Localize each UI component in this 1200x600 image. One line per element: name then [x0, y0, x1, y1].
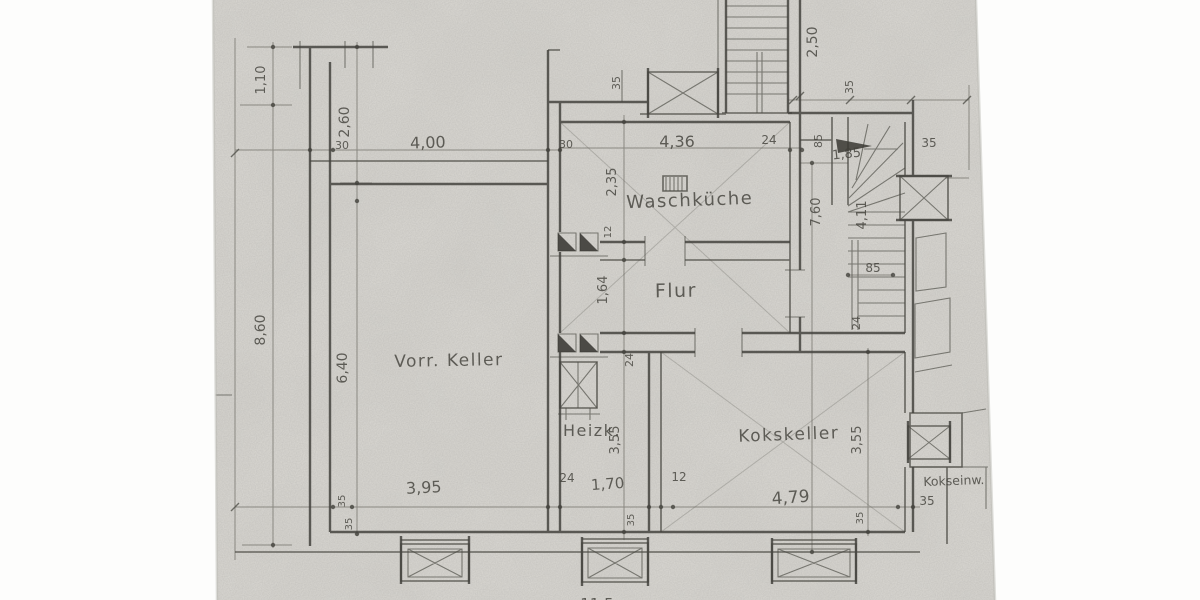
- dim-label: 3,95: [405, 477, 442, 498]
- dim-label: 24: [623, 353, 636, 367]
- dim-label: 2,50: [805, 26, 821, 57]
- dim-label: 1,10: [254, 66, 269, 95]
- dim-label: 35: [855, 512, 866, 525]
- dim-label: 1,70: [590, 474, 625, 494]
- dim-label: 85: [812, 134, 825, 148]
- scanned-floor-plan: Waschküche Flur Vorr. Keller Heizk. Koks…: [0, 0, 1200, 600]
- dim-label: 12: [671, 470, 686, 484]
- floor-plan-canvas: Waschküche Flur Vorr. Keller Heizk. Koks…: [0, 0, 1200, 600]
- dim-label: 35: [337, 495, 348, 508]
- dim-label: 3,55: [608, 426, 623, 455]
- dim-label: 2,60: [337, 106, 353, 137]
- room-label-waschkueche: Waschküche: [626, 188, 754, 213]
- scan-margin-right: [976, 0, 1200, 600]
- scan-margin-left: [0, 0, 217, 600]
- dim-label: 3,55: [850, 426, 865, 455]
- dim-label: 35: [843, 80, 856, 94]
- room-label-vorr-keller: Vorr. Keller: [394, 350, 504, 372]
- dim-label: 12: [603, 226, 614, 239]
- dim-label: 30: [559, 138, 573, 151]
- dim-label: 24: [761, 133, 776, 147]
- dim-label: 4,36: [659, 132, 695, 151]
- dim-label: 35: [610, 76, 623, 90]
- dim-label: 35: [626, 514, 637, 527]
- dim-label-clipped: 11,5: [580, 595, 613, 600]
- dim-label: 35: [919, 494, 934, 508]
- room-label-kokskeller: Kokskeller: [738, 423, 840, 447]
- dim-label: 24: [559, 471, 574, 485]
- dim-label: 30: [335, 139, 349, 152]
- dim-label: 4,11: [855, 201, 870, 230]
- dim-label: 2,35: [605, 168, 620, 197]
- dim-label: 6,40: [335, 352, 351, 383]
- dim-label: 1,85: [831, 146, 861, 164]
- dim-label: 85: [865, 261, 880, 275]
- dim-label: 8,60: [253, 314, 269, 345]
- dim-label: 24: [850, 316, 863, 330]
- dim-label: 4,79: [771, 487, 810, 510]
- dim-label: 35: [344, 518, 355, 531]
- dim-label: 7,60: [809, 198, 824, 227]
- room-label-kokseinw: Kokseinw.: [923, 472, 985, 489]
- dim-label: 1,64: [596, 276, 611, 305]
- room-label-flur: Flur: [655, 280, 697, 303]
- dim-label: 4,00: [410, 132, 446, 152]
- dim-label: 35: [921, 136, 936, 150]
